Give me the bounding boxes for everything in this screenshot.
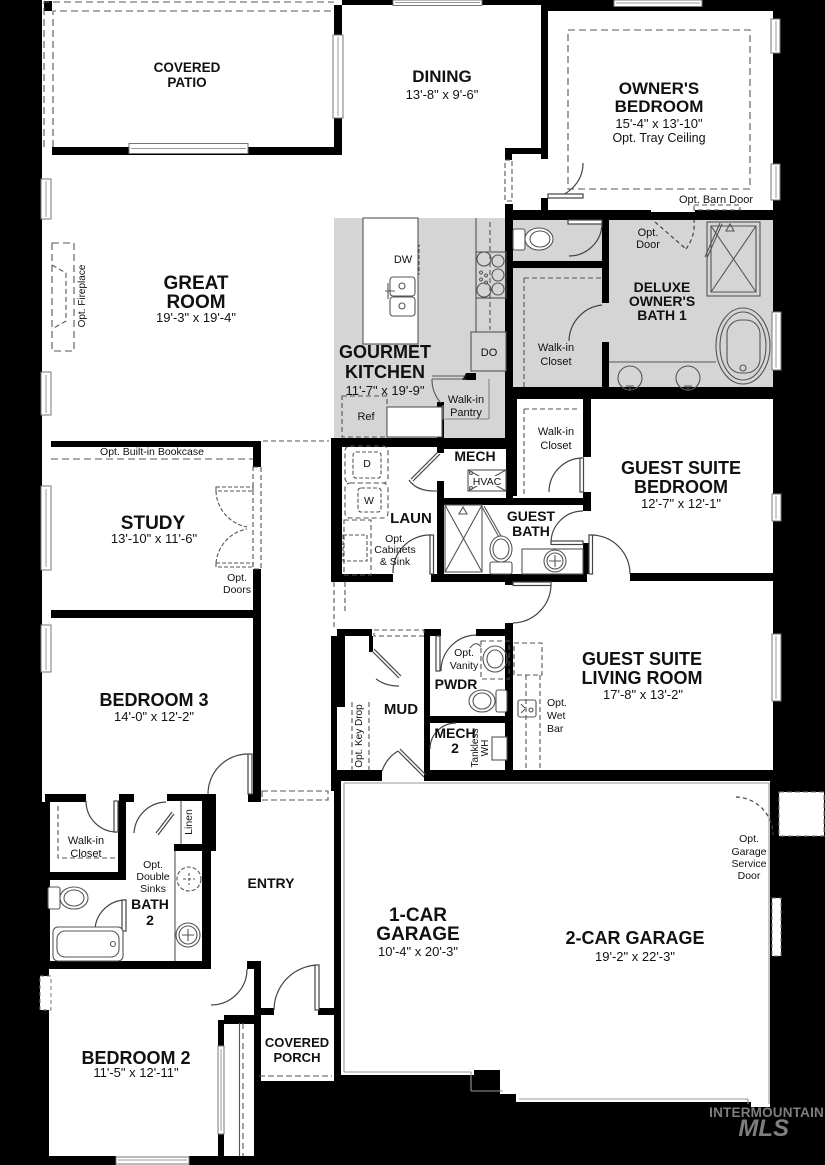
svg-text:DW: DW (394, 254, 413, 266)
svg-text:BATH 1: BATH 1 (637, 307, 687, 323)
svg-text:19'-2" x 22'-3": 19'-2" x 22'-3" (595, 949, 675, 964)
svg-text:Bar: Bar (547, 723, 564, 735)
svg-text:BATH: BATH (512, 523, 550, 539)
svg-text:BEDROOM: BEDROOM (615, 97, 704, 116)
svg-text:COVERED: COVERED (265, 1035, 329, 1050)
svg-text:Door: Door (738, 870, 761, 882)
svg-text:LIVING ROOM: LIVING ROOM (582, 668, 703, 688)
svg-text:LAUN: LAUN (390, 510, 432, 527)
svg-text:Garage: Garage (731, 846, 766, 858)
svg-text:12'-7" x 12'-1": 12'-7" x 12'-1" (641, 496, 721, 511)
svg-text:Sinks: Sinks (140, 883, 166, 895)
svg-text:Linen: Linen (183, 809, 195, 835)
svg-text:GUEST SUITE: GUEST SUITE (621, 458, 741, 478)
svg-text:14'-0" x 12'-2": 14'-0" x 12'-2" (114, 709, 194, 724)
svg-text:DO: DO (481, 347, 498, 359)
svg-text:Opt.: Opt. (143, 859, 163, 871)
svg-text:Door: Door (636, 239, 660, 251)
svg-text:15'-4" x 13'-10": 15'-4" x 13'-10" (615, 116, 703, 131)
svg-text:Cabinets: Cabinets (374, 544, 415, 556)
svg-text:2: 2 (451, 740, 459, 756)
svg-text:BEDROOM: BEDROOM (634, 477, 728, 497)
svg-text:Opt.: Opt. (227, 572, 247, 584)
svg-text:19'-3" x 19'-4": 19'-3" x 19'-4" (156, 310, 236, 325)
svg-text:17'-8" x 13'-2": 17'-8" x 13'-2" (603, 687, 683, 702)
svg-text:Wet: Wet (547, 710, 566, 722)
svg-text:BEDROOM 3: BEDROOM 3 (99, 690, 208, 710)
svg-text:13'-8" x 9'-6": 13'-8" x 9'-6" (406, 87, 479, 102)
svg-text:Closet: Closet (540, 356, 571, 368)
svg-text:Vanity: Vanity (450, 660, 479, 672)
svg-text:Opt. Tray Ceiling: Opt. Tray Ceiling (612, 131, 705, 145)
svg-text:Doors: Doors (223, 584, 251, 596)
svg-text:HVAC: HVAC (473, 476, 502, 488)
svg-text:Walk-in: Walk-in (538, 426, 574, 438)
svg-text:KITCHEN: KITCHEN (345, 362, 425, 382)
svg-text:2: 2 (146, 912, 154, 928)
svg-text:PATIO: PATIO (167, 75, 206, 90)
svg-text:& Sink: & Sink (380, 556, 411, 568)
svg-text:PORCH: PORCH (274, 1050, 321, 1065)
svg-text:GUEST SUITE: GUEST SUITE (582, 649, 702, 669)
svg-text:PWDR: PWDR (435, 676, 478, 692)
svg-text:OWNER'S: OWNER'S (619, 79, 700, 98)
svg-text:Opt. Barn Door: Opt. Barn Door (679, 194, 753, 206)
svg-text:10'-4" x 20'-3": 10'-4" x 20'-3" (378, 944, 458, 959)
svg-text:Opt.: Opt. (638, 227, 659, 239)
svg-text:Walk-in: Walk-in (538, 342, 574, 354)
svg-text:GARAGE: GARAGE (376, 924, 459, 945)
svg-text:2-CAR GARAGE: 2-CAR GARAGE (565, 928, 704, 948)
svg-text:COVERED: COVERED (154, 60, 221, 75)
svg-text:MECH: MECH (454, 448, 495, 464)
svg-text:MLS: MLS (738, 1115, 789, 1142)
svg-text:Service: Service (731, 858, 766, 870)
svg-text:Walk-in: Walk-in (448, 394, 484, 406)
svg-text:Double: Double (136, 871, 169, 883)
svg-text:GREAT: GREAT (163, 273, 228, 294)
svg-text:WH: WH (480, 740, 491, 757)
svg-text:Closet: Closet (70, 848, 101, 860)
svg-text:GUEST: GUEST (507, 508, 556, 524)
svg-text:DINING: DINING (412, 67, 472, 86)
svg-text:Opt.: Opt. (454, 647, 474, 659)
svg-text:Opt.: Opt. (739, 833, 759, 845)
svg-text:Pantry: Pantry (450, 407, 482, 419)
svg-text:Ref: Ref (357, 411, 375, 423)
svg-text:BATH: BATH (131, 896, 169, 912)
svg-text:ENTRY: ENTRY (248, 875, 296, 891)
svg-text:11'-5" x 12'-11": 11'-5" x 12'-11" (93, 1065, 179, 1080)
svg-text:1-CAR: 1-CAR (389, 905, 447, 926)
svg-text:W: W (364, 495, 374, 507)
svg-text:Closet: Closet (540, 440, 571, 452)
svg-text:Opt.: Opt. (547, 697, 567, 709)
svg-text:Opt. Key Drop: Opt. Key Drop (354, 704, 365, 768)
svg-text:Walk-in: Walk-in (68, 835, 104, 847)
svg-text:Opt. Fireplace: Opt. Fireplace (77, 264, 88, 327)
svg-text:GOURMET: GOURMET (339, 342, 431, 362)
svg-text:MUD: MUD (384, 701, 418, 718)
svg-text:Opt. Built-in Bookcase: Opt. Built-in Bookcase (100, 446, 204, 458)
svg-text:13'-10" x 11'-6": 13'-10" x 11'-6" (111, 531, 198, 546)
svg-text:11'-7" x 19'-9": 11'-7" x 19'-9" (346, 383, 425, 398)
svg-text:D: D (363, 458, 371, 470)
